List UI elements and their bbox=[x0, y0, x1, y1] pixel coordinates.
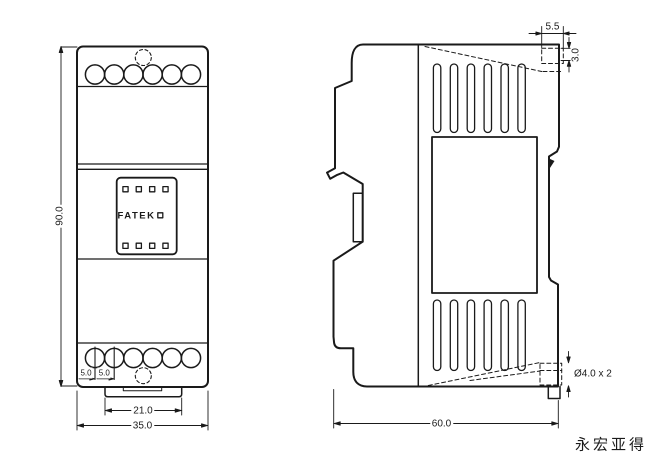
dimension-drawing: 90.0 21.0 35.0 5.0 5.0 FATEK 5.5 3.0 Ø4.… bbox=[0, 0, 660, 460]
front-height-dim-label: 90.0 bbox=[55, 204, 66, 227]
hidden-hole-top bbox=[425, 47, 563, 72]
din-hook-tooth bbox=[549, 159, 555, 170]
side-foot-tab bbox=[548, 387, 560, 399]
terminal-circles-bottom bbox=[85, 348, 200, 367]
hook-height-dim-label: 3.0 bbox=[570, 46, 581, 64]
vent-slots-top bbox=[433, 64, 525, 133]
watermark-text: 永宏亚得 bbox=[573, 440, 649, 451]
hook-depth-dim-label: 5.5 bbox=[544, 21, 562, 32]
terminal-circles-top bbox=[85, 65, 200, 84]
front-tab-width-dim-label: 21.0 bbox=[131, 405, 154, 416]
brand-label: FATEK bbox=[118, 210, 156, 221]
terminal-pitch-dim-label-1: 5.0 bbox=[79, 367, 92, 378]
knockout-hole-bottom bbox=[135, 368, 151, 384]
din-tab bbox=[105, 387, 182, 397]
side-label-plate bbox=[432, 137, 537, 293]
side-view-outline bbox=[327, 45, 559, 387]
depth-dim-label: 60.0 bbox=[430, 418, 453, 429]
mount-hole-dim-label: Ø4.0 x 2 bbox=[572, 369, 614, 380]
din-clip-slider bbox=[353, 193, 362, 241]
front-width-dim-label: 35.0 bbox=[131, 420, 154, 431]
vent-slots-bottom bbox=[433, 300, 525, 371]
hidden-hole-bottom bbox=[428, 363, 561, 386]
drawing-canvas bbox=[0, 0, 660, 460]
knockout-hole-top bbox=[135, 50, 151, 66]
terminal-pitch-dim-label-2: 5.0 bbox=[98, 367, 111, 378]
